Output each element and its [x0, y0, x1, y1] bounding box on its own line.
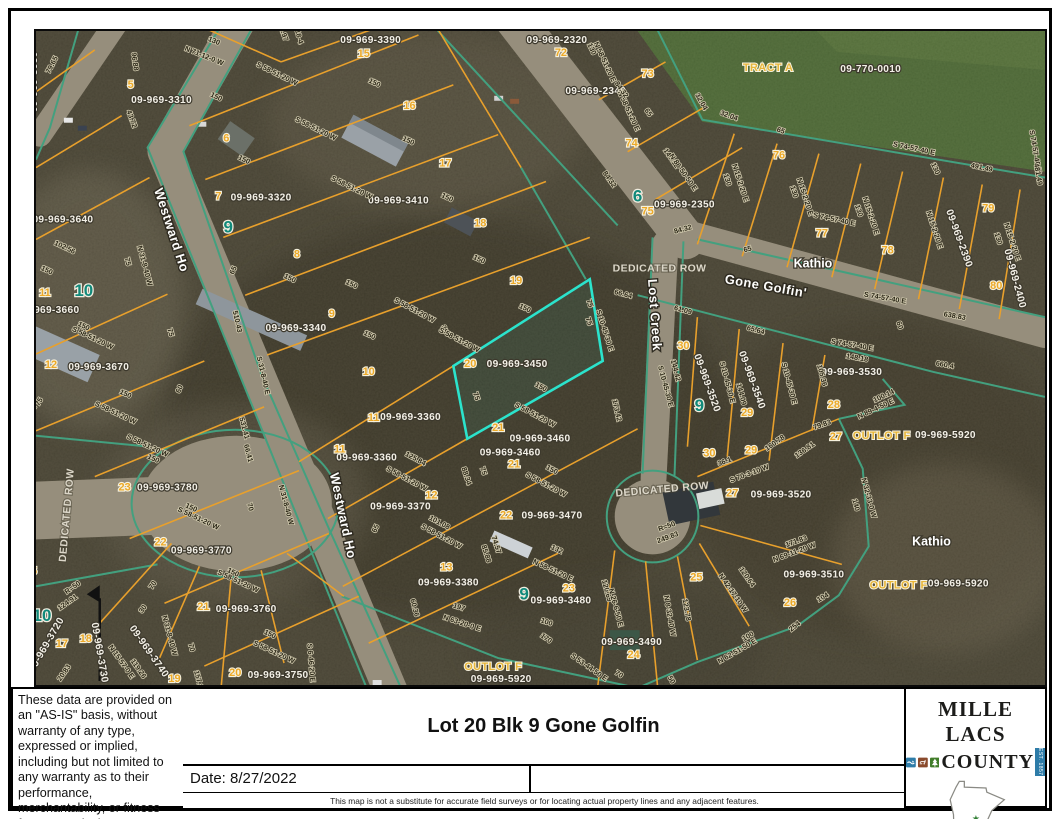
lot-number: 80 [990, 280, 1002, 292]
parcel-id-label: 09-969-3530 [821, 367, 882, 378]
tree-icon [930, 756, 940, 769]
parcel-id-label: 09-969-2320 [527, 35, 588, 46]
plat-map-page: Westward HoWestward HoLost CreekGone Gol… [0, 0, 1060, 819]
logo-text-mille-lacs: MILLE LACS [906, 697, 1045, 747]
lot-number: 7 [215, 190, 221, 202]
lot-number: 23 [119, 482, 131, 494]
parcel-id-label: 09-969-3340 [266, 323, 327, 334]
fine-print-bar: This map is not a substitute for accurat… [183, 792, 906, 808]
parcel-id-label: 09-969-3460 [510, 434, 571, 445]
lot-number: 16 [403, 100, 415, 112]
disclaimer-box: These data are provided on an "AS-IS" ba… [11, 687, 185, 808]
parcel-id-label: 09-969-5920 [915, 430, 976, 441]
empty-box [529, 764, 906, 794]
block-number: 9 [519, 584, 528, 603]
county-location-star: ★ [971, 813, 979, 819]
parcel-id-label: 09-969-3490 [601, 637, 662, 648]
dedicated-row-label: DEDICATED ROW [613, 263, 707, 274]
title-box: Lot 20 Blk 9 Gone Golfin [183, 687, 906, 766]
block-number: 10 [36, 606, 51, 625]
parcel-id-label: 09-969-3310 [131, 95, 192, 106]
lot-number: 18 [474, 217, 486, 229]
parcel-id-label: 09-969-3670 [68, 362, 129, 373]
parcel-id-label: 09-969-3750 [248, 670, 309, 681]
lot-number: 24 [628, 649, 641, 661]
lot-number: 11 [39, 287, 51, 299]
lot-number: 12 [45, 359, 57, 371]
parcel-id-label: 09-969-3380 [418, 577, 479, 588]
lot-number: 29 [741, 407, 753, 419]
parcel-id-label: 09-969-5920 [928, 578, 989, 589]
lot-number: 5 [128, 79, 134, 91]
parcel-id-label: 09-969-3450 [487, 359, 548, 370]
parcel-id-label: 09-969-3520 [751, 490, 812, 501]
animal-icon [918, 756, 928, 769]
lot-number: 11 [368, 412, 380, 424]
lot-number: 15 [358, 48, 370, 60]
lot-number: 30 [677, 340, 689, 352]
logo-est-strip: EST. 1857 [1035, 748, 1045, 776]
lot-number: 79 [982, 202, 994, 214]
fine-print-text: This map is not a substitute for accurat… [330, 796, 759, 806]
lot-number: 78 [882, 244, 894, 256]
parcel-id-label: 09-770-0010 [840, 64, 901, 75]
map-title: Lot 20 Blk 9 Gone Golfin [427, 715, 659, 738]
lot-number: 74 [626, 138, 639, 150]
map-canvas[interactable]: Westward HoWestward HoLost CreekGone Gol… [34, 29, 1047, 687]
lot-number: 21 [492, 422, 504, 434]
lot-number: 12 [425, 490, 437, 502]
lot-number: 23 [563, 582, 575, 594]
parcel-id-label: 09-969-3640 [36, 214, 93, 225]
lot-number: 21 [508, 459, 520, 471]
parcel-id-label: 09-969-3320 [231, 192, 292, 203]
lot-number: 75 [641, 205, 653, 217]
date-label: Date: 8/27/2022 [190, 770, 297, 787]
parcel-id-label: 09-969-3660 [36, 305, 79, 316]
lot-number: 17 [56, 638, 68, 650]
parcel-id-label: 09-969-3470 [522, 511, 583, 522]
lot-number: 76 [773, 150, 785, 162]
lot-number: 26 [784, 597, 796, 609]
lot-number: 20 [229, 667, 241, 679]
outlot-label: OUTLOT F [853, 430, 911, 442]
lot-number: 27 [726, 488, 738, 500]
place-name-label: Kathio [794, 256, 833, 270]
parcel-id-label: 09-969-3760 [216, 604, 277, 615]
lot-number: 15 [36, 565, 37, 577]
parcel-id-label: 09-969-3370 [370, 502, 431, 513]
lot-number: 9 [329, 308, 335, 320]
parcel-id-label: 09-969-3780 [137, 483, 198, 494]
logo-text-county: COUNTY [941, 751, 1034, 774]
lot-number: 19 [168, 673, 180, 685]
lot-number: 21 [197, 601, 209, 613]
lot-number: 27 [830, 431, 842, 443]
lot-number: 73 [641, 68, 653, 80]
place-name-label: Kathio [912, 534, 951, 548]
lot-number: 13 [440, 561, 452, 573]
parcel-id-label: 09-969-3770 [171, 545, 232, 556]
lot-number: 28 [828, 399, 840, 411]
logo-row: COUNTY EST. 1857 [906, 748, 1045, 776]
lot-number: 25 [690, 571, 702, 583]
lot-number: 11 [334, 444, 346, 456]
lot-number: 22 [154, 536, 166, 548]
parcel-id-label: 09-969-3460 [480, 448, 541, 459]
parcel-id-label: 09-969-3480 [530, 595, 591, 606]
lot-number: 22 [500, 510, 512, 522]
lot-number: 30 [703, 448, 715, 460]
minnesota-outline: ★ [906, 778, 1045, 819]
block-number: 9 [695, 396, 704, 415]
map-svg: Westward HoWestward HoLost CreekGone Gol… [36, 31, 1045, 685]
parcel-id-label: 09-969-3360 [380, 412, 441, 423]
lot-number: 10 [363, 366, 375, 378]
block-number: 9 [224, 217, 233, 236]
outlot-label: OUTLOT F [464, 661, 522, 673]
parcel-id-label: 09-969-5920 [471, 674, 532, 685]
lot-number: 18 [80, 633, 92, 645]
outlot-label: OUTLOT F [870, 579, 928, 591]
parcel-id-label: 09-969-3510 [783, 569, 844, 580]
date-box: Date: 8/27/2022 [183, 764, 531, 794]
parcel-id-label: 09-969-3410 [368, 195, 429, 206]
parcel-id-label: 09-969-3630 [36, 51, 40, 112]
lot-number: 6 [223, 133, 229, 145]
parcel-id-label: 09-969-3390 [340, 35, 401, 46]
lot-number: 20 [464, 358, 476, 370]
block-number: 6 [633, 186, 642, 205]
disclaimer-text: These data are provided on an "AS-IS" ba… [18, 693, 172, 819]
outlot-label: TRACT A [743, 62, 793, 74]
block-number: 10 [74, 281, 93, 300]
water-icon [906, 756, 916, 769]
cul-de-sac-west [141, 436, 332, 572]
lot-number: 72 [555, 47, 567, 59]
lot-number: 19 [510, 275, 522, 287]
parcel-id-label: 09-969-2350 [654, 199, 715, 210]
county-logo-box: MILLE LACS COUNTY EST. 1857 ★ [904, 687, 1047, 808]
lot-number: 17 [439, 158, 451, 170]
lot-number: 8 [294, 248, 300, 260]
lot-number: 29 [745, 445, 757, 457]
lot-number: 77 [816, 227, 828, 239]
